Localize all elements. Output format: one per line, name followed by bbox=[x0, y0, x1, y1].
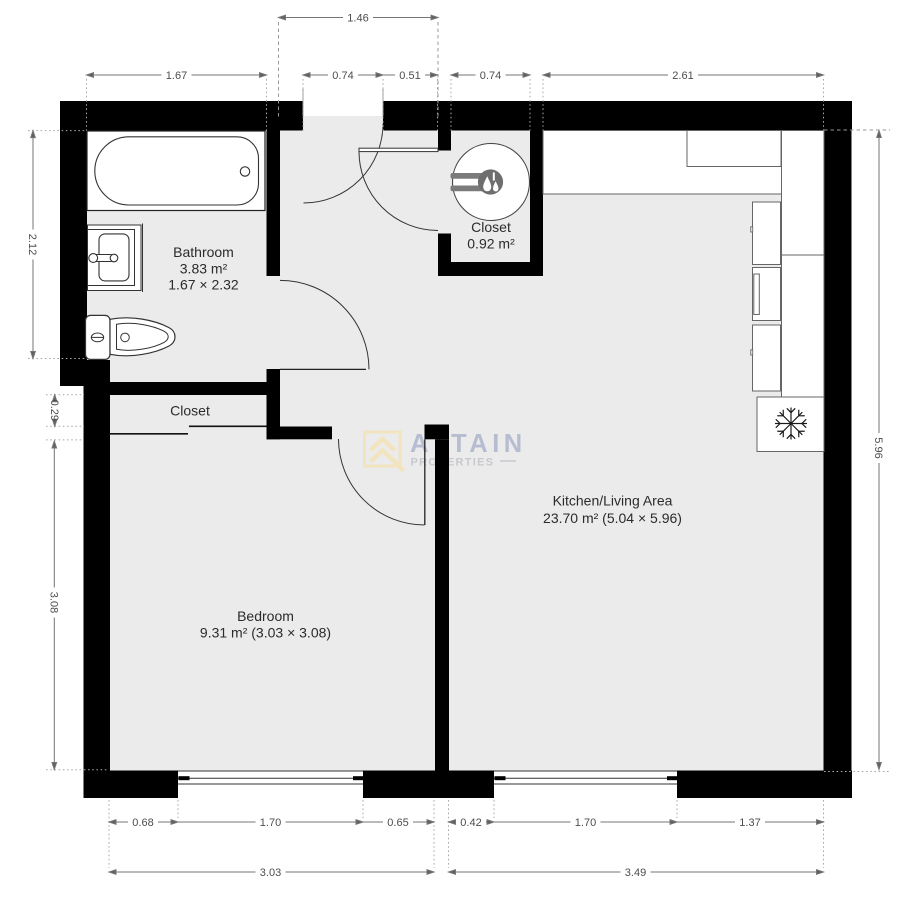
svg-text:1.37: 1.37 bbox=[739, 817, 760, 829]
svg-text:5.96: 5.96 bbox=[872, 437, 884, 458]
svg-text:0.65: 0.65 bbox=[387, 817, 408, 829]
svg-text:0.68: 0.68 bbox=[132, 817, 153, 829]
svg-text:0.74: 0.74 bbox=[480, 70, 501, 82]
svg-text:0.74: 0.74 bbox=[332, 70, 353, 82]
svg-text:2.61: 2.61 bbox=[672, 70, 693, 82]
svg-text:1.46: 1.46 bbox=[347, 12, 368, 24]
svg-text:0.51: 0.51 bbox=[399, 70, 420, 82]
svg-text:Bathroom: Bathroom bbox=[173, 244, 234, 260]
svg-text:0.29: 0.29 bbox=[48, 400, 60, 421]
svg-text:Bedroom: Bedroom bbox=[237, 608, 294, 624]
svg-text:1.70: 1.70 bbox=[260, 817, 281, 829]
svg-text:9.31 m² (3.03 × 3.08): 9.31 m² (3.03 × 3.08) bbox=[200, 625, 331, 641]
svg-text:PROPERTIES: PROPERTIES bbox=[411, 457, 495, 469]
svg-text:1.67: 1.67 bbox=[166, 70, 187, 82]
svg-text:Closet: Closet bbox=[170, 403, 210, 419]
svg-text:3.08: 3.08 bbox=[47, 592, 59, 613]
svg-text:3.03: 3.03 bbox=[260, 867, 281, 879]
svg-text:23.70 m² (5.04 × 5.96): 23.70 m² (5.04 × 5.96) bbox=[543, 510, 682, 526]
svg-text:1.67 × 2.32: 1.67 × 2.32 bbox=[168, 277, 239, 293]
svg-text:2.12: 2.12 bbox=[26, 234, 38, 255]
svg-text:3.49: 3.49 bbox=[625, 867, 646, 879]
svg-text:Kitchen/Living Area: Kitchen/Living Area bbox=[553, 493, 673, 509]
svg-text:0.92 m²: 0.92 m² bbox=[467, 236, 515, 252]
svg-text:Closet: Closet bbox=[471, 219, 511, 235]
svg-text:0.42: 0.42 bbox=[460, 817, 481, 829]
svg-text:3.83 m²: 3.83 m² bbox=[180, 260, 228, 276]
svg-text:1.70: 1.70 bbox=[575, 817, 596, 829]
